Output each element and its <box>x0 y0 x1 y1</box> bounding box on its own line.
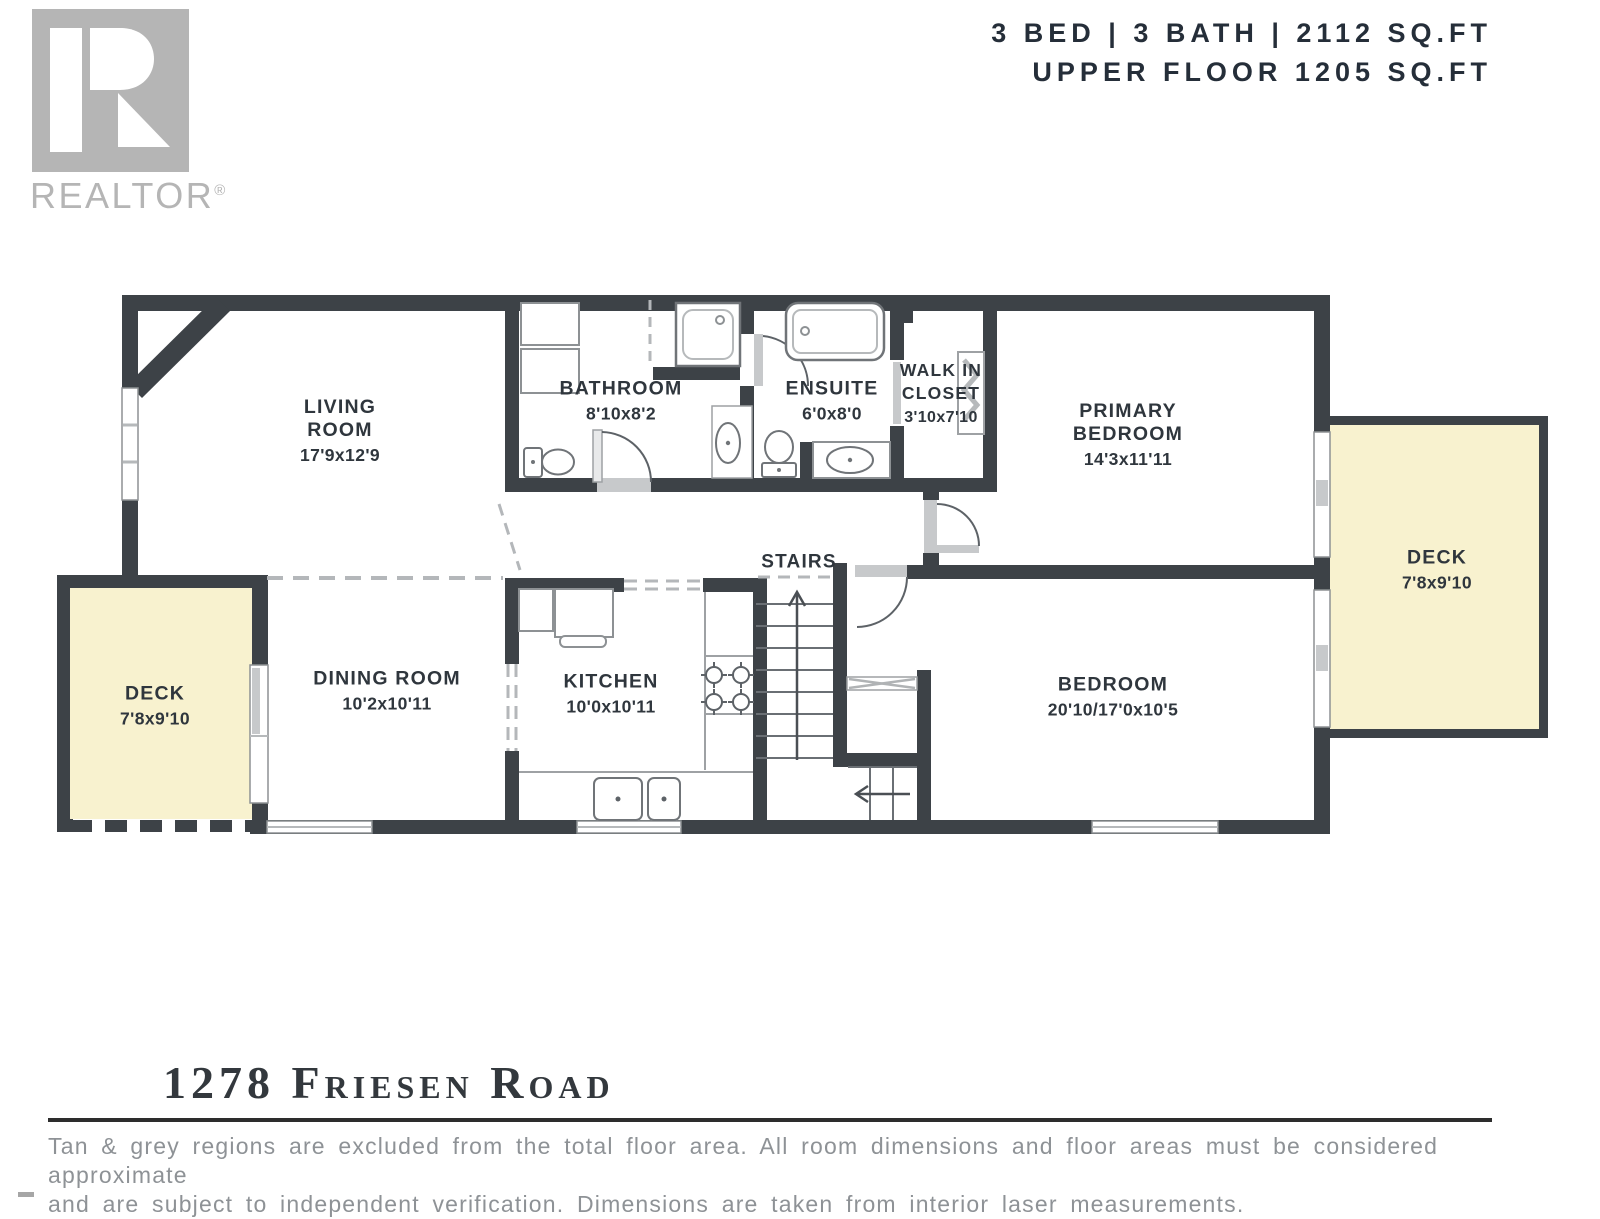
bedroom-door <box>855 565 907 627</box>
room-label-deck-right: DECK 7'8x9'10 <box>1357 547 1517 594</box>
vanity-sink-icon <box>813 442 890 478</box>
primary-bedroom-door <box>924 500 979 553</box>
kitchen-sink-icon <box>594 778 680 820</box>
stairs-down <box>848 767 917 820</box>
room-label-bedroom: BEDROOM 20'10/17'0x10'5 <box>943 674 1283 721</box>
room-label-kitchen: KITCHEN 10'0x10'11 <box>501 671 721 718</box>
toilet-icon <box>762 431 796 477</box>
disclaimer-line-2: and are subject to independent verificat… <box>48 1190 1548 1219</box>
shower-icon <box>676 303 740 366</box>
room-label-stairs: STAIRS <box>729 551 869 574</box>
disclaimer-line-1: Tan & grey regions are excluded from the… <box>48 1132 1548 1190</box>
page-corner-mark <box>18 1192 34 1197</box>
kitchen-window <box>577 821 681 833</box>
bedroom-deck-window <box>1314 590 1330 727</box>
closet-x-icon <box>847 677 917 690</box>
laundry-unit-icon <box>521 303 579 345</box>
stairs-up <box>756 577 833 760</box>
disclaimer-text: Tan & grey regions are excluded from the… <box>48 1132 1548 1219</box>
room-label-deck-left: DECK 7'8x9'10 <box>75 683 235 730</box>
floor-plan-flyer: { "header": { "line1": "3 BED | 3 BATH |… <box>0 0 1600 1200</box>
property-address: 1278 Friesen Road <box>163 1056 615 1109</box>
footer-divider <box>48 1118 1492 1122</box>
bathroom-door <box>593 430 651 492</box>
room-label-primary-bedroom: PRIMARY BEDROOM 14'3x11'11 <box>1038 400 1218 470</box>
toilet-icon <box>524 448 574 477</box>
floor-plan-drawing <box>0 0 1600 1200</box>
diagonal-wall <box>128 297 230 398</box>
bedroom-window <box>1092 821 1218 833</box>
room-label-dining: DINING ROOM 10'2x10'11 <box>312 668 462 715</box>
primary-deck-window <box>1314 432 1330 557</box>
room-label-living: LIVING ROOM 17'9x12'9 <box>270 396 410 466</box>
living-window <box>122 388 138 500</box>
room-label-bathroom: BATHROOM 8'10x8'2 <box>501 378 741 425</box>
deck-sliding-door <box>250 665 268 803</box>
bathtub-icon <box>786 303 884 360</box>
room-label-walk-in-closet: WALK IN CLOSET 3'10x7'10 <box>881 359 1001 429</box>
dining-window <box>267 821 372 833</box>
